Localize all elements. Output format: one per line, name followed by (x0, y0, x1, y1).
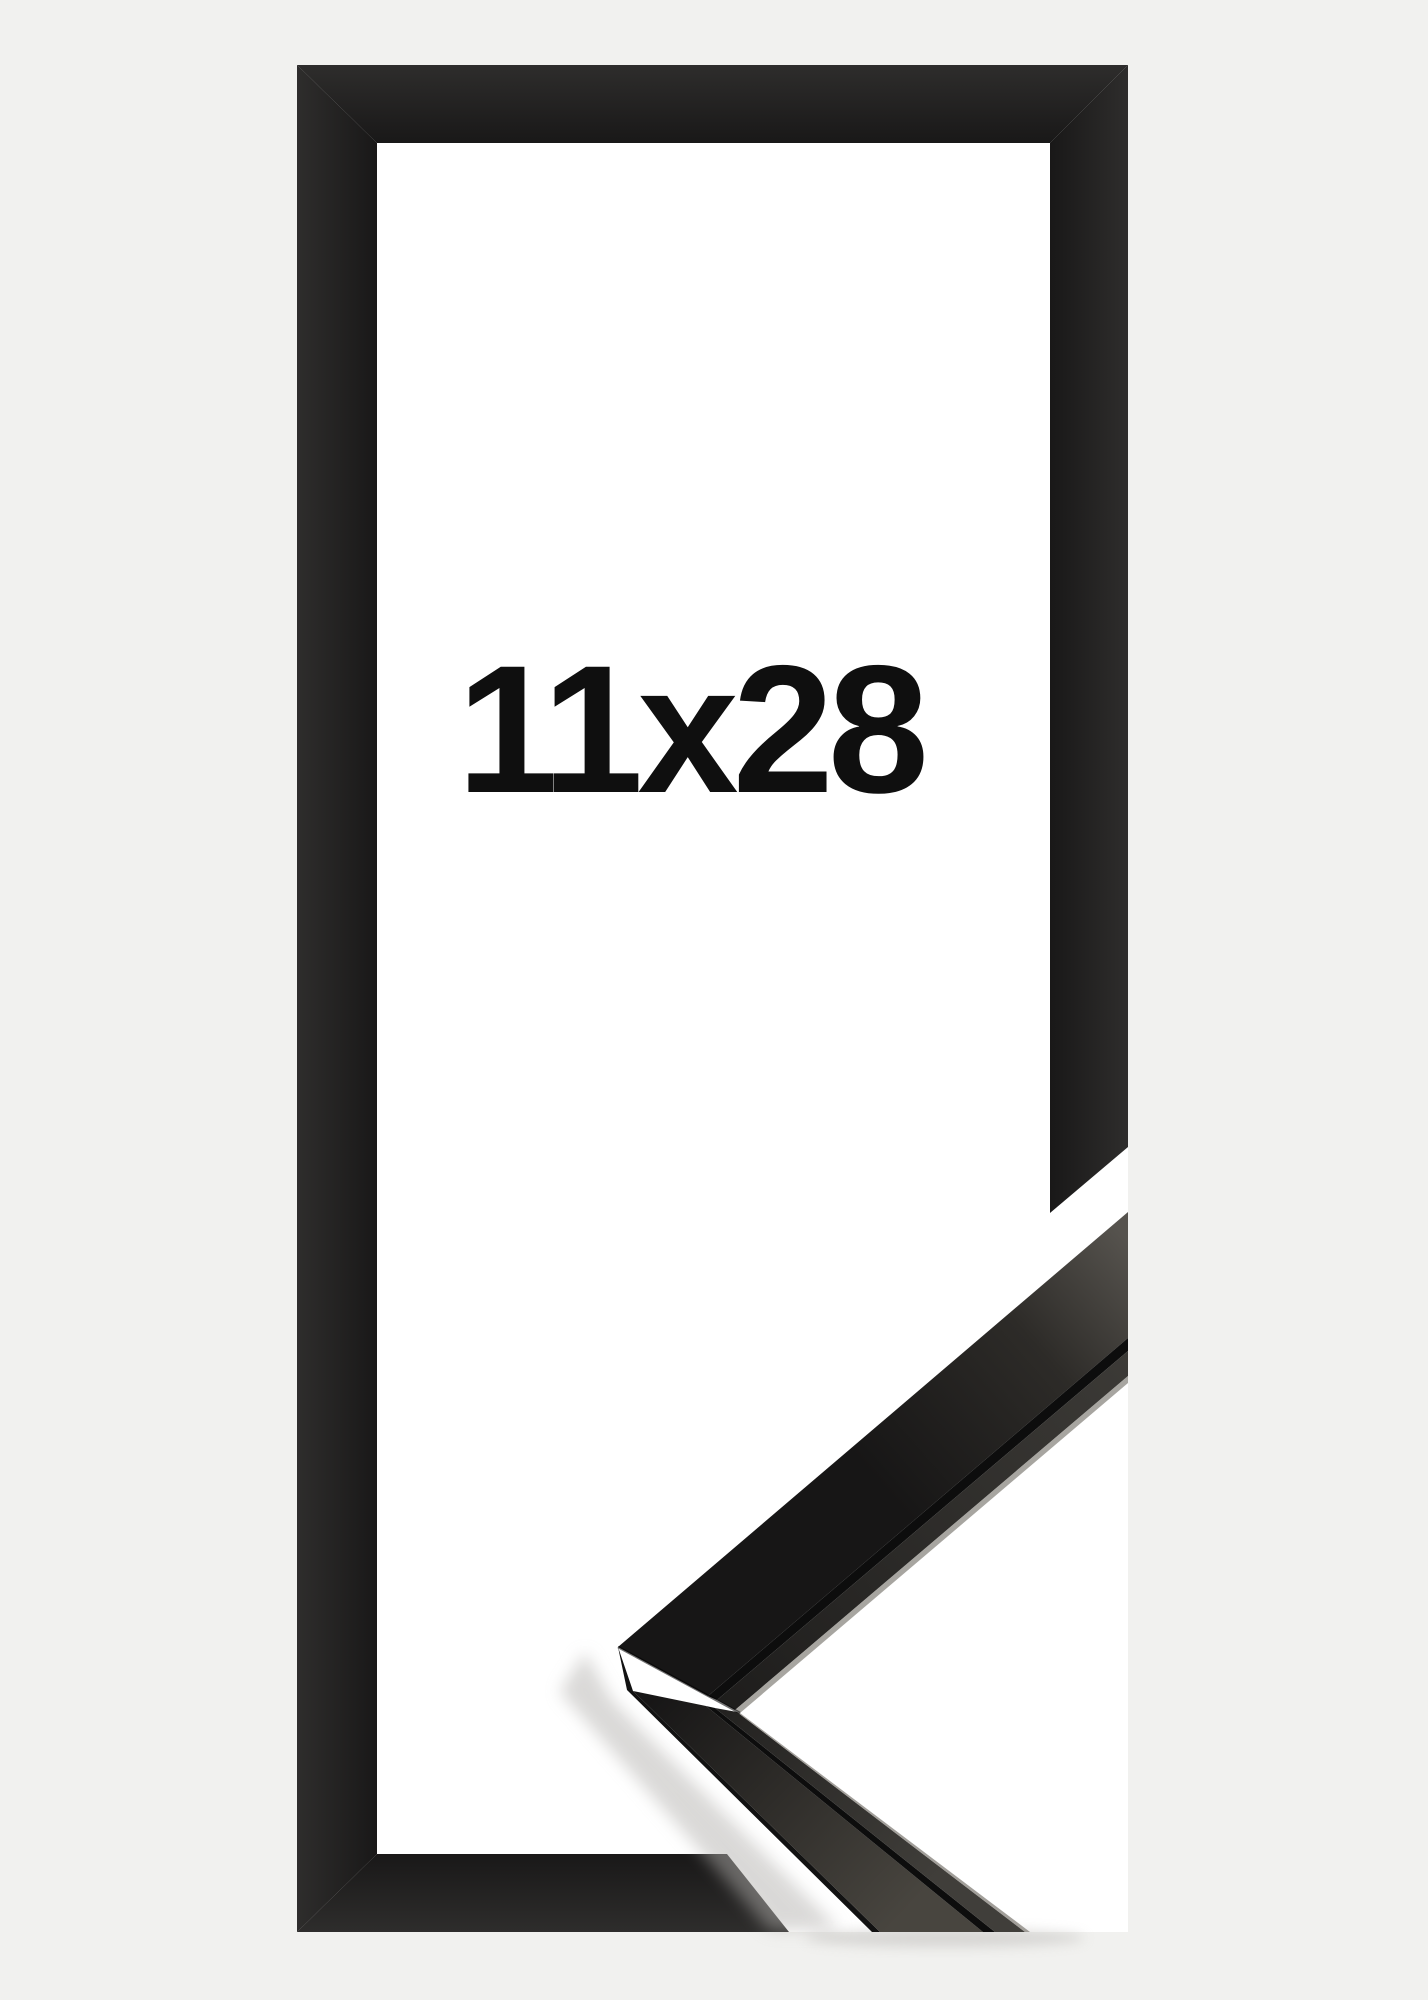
size-label: 11x28 (457, 627, 924, 831)
frame-left-bar (297, 65, 377, 1932)
product-image: 11x28 (0, 0, 1428, 2000)
frame-top-bar (297, 65, 1128, 143)
frame-product-photo: 11x28 (0, 0, 1428, 2000)
